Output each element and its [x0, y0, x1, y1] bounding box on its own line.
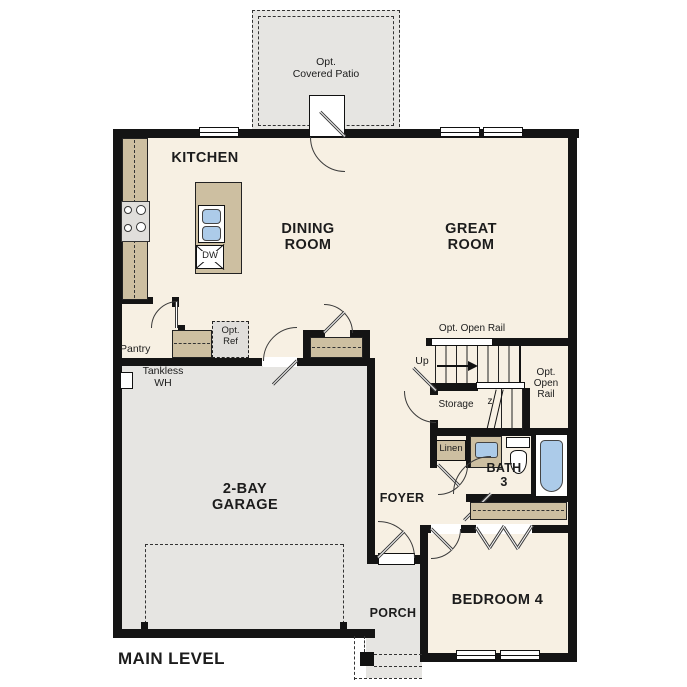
wall-left-garage	[113, 362, 122, 638]
garage-door-nub-right	[340, 622, 347, 629]
burner-1	[124, 206, 132, 214]
tankless-wh-unit	[120, 372, 133, 389]
bathtub	[540, 440, 563, 492]
dishwasher-label: DW	[198, 251, 222, 262]
linen-label: Linen	[436, 444, 466, 455]
toilet-tank	[506, 437, 530, 448]
up-arrow-line	[437, 365, 470, 367]
tankless-wh-label: Tankless WH	[136, 366, 190, 390]
coat-closet-dash	[312, 347, 361, 348]
wall-kitchen-garage-a	[113, 358, 262, 366]
wall-right	[568, 129, 577, 662]
opt-ref-label: Opt. Ref	[212, 326, 249, 347]
wall-greatroom-stair	[493, 338, 568, 346]
wall-bedroom-bottom	[420, 653, 577, 662]
great-room-label: GREAT ROOM	[426, 221, 516, 253]
greatroom-window-2	[483, 127, 523, 137]
storage-label: Storage	[432, 399, 480, 410]
plan-title: MAIN LEVEL	[118, 649, 258, 668]
wall-garage-right	[367, 358, 375, 564]
pantry-label: Pantry	[120, 344, 164, 356]
sink-bowl-1	[202, 209, 221, 224]
stair-break-z: z	[483, 396, 497, 407]
sink-bowl-2	[202, 226, 221, 241]
porch-step-dash-h1	[374, 654, 422, 655]
wall-closet-top-right	[350, 330, 370, 337]
foyer-label: FOYER	[376, 491, 428, 505]
dining-room-label: DINING ROOM	[263, 221, 353, 253]
porch-label: PORCH	[368, 606, 418, 620]
stair-edge	[519, 346, 521, 383]
stair-rail-top	[431, 338, 493, 346]
stair-treads-lower	[501, 389, 523, 430]
up-arrow-head	[468, 361, 478, 371]
wall-left-upper	[113, 129, 122, 369]
kitchen-window	[199, 127, 239, 137]
stair-rail-mid	[476, 382, 525, 389]
porch-step-dash-h3	[354, 678, 422, 679]
garage-door-dash-top	[145, 544, 343, 545]
garage-label: 2-BAY GARAGE	[195, 481, 295, 513]
porch-column	[360, 652, 374, 666]
burner-4	[136, 222, 146, 232]
patio-label: Opt. Covered Patio	[276, 57, 376, 81]
garage-door-nub-left	[141, 622, 148, 629]
porch-step-dash-v2	[364, 636, 365, 652]
porch-step-dash-v1	[354, 636, 355, 680]
vanity-sink	[475, 442, 498, 458]
bedroom-window-1	[456, 650, 496, 660]
wall-bedroom-top-c	[532, 525, 577, 533]
garage-door-dash-left	[145, 544, 146, 629]
bedroom4-label: BEDROOM 4	[430, 592, 565, 608]
burner-3	[124, 224, 132, 232]
up-label: Up	[412, 356, 432, 368]
kitchen-label: KITCHEN	[160, 150, 250, 166]
burner-2	[136, 205, 146, 215]
counter-dash	[174, 343, 210, 344]
porch-step-dash-h2	[374, 666, 422, 667]
open-rail-right-label: Opt. Open Rail	[526, 367, 566, 401]
wall-garage-bottom	[113, 629, 375, 638]
wall-bedroom-top-b	[461, 525, 476, 533]
bedroom-closet-dash	[473, 510, 564, 511]
open-rail-top-label: Opt. Open Rail	[420, 323, 524, 334]
bedroom-window-2	[500, 650, 540, 660]
floor-plan: Opt. Covered Patio	[0, 0, 687, 687]
kitchen-counter-bottom	[172, 330, 212, 358]
garage-door-dash-right	[343, 544, 344, 629]
bath3-label: BATH 3	[478, 461, 530, 489]
wall-bedroom-left	[420, 525, 428, 662]
greatroom-window-1	[440, 127, 480, 137]
bedroom-closet-shelf	[470, 502, 567, 520]
wall-foyer-front-b	[415, 555, 426, 564]
